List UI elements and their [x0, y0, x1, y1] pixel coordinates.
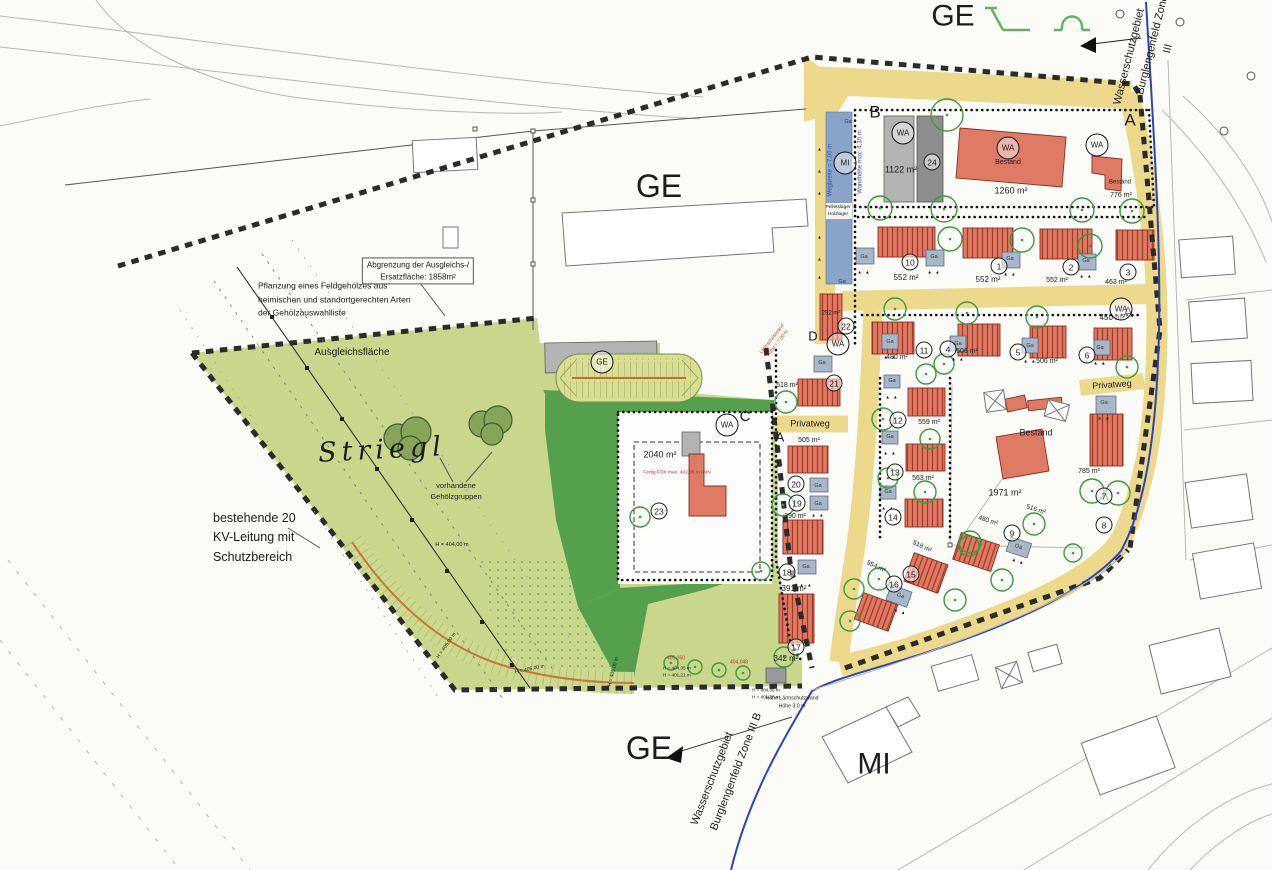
plot-area-label: 480 m²: [977, 513, 999, 528]
plot-number-21: 21: [826, 375, 843, 392]
wa-zone-circle: WA: [997, 137, 1020, 160]
plot-number-5: 5: [1010, 344, 1027, 361]
plot-number-20: 20: [788, 476, 805, 493]
garage-label: Ga: [818, 360, 825, 368]
plot-area-label: 391 m²: [782, 583, 807, 595]
field-name-striegl: Striegl: [317, 427, 447, 473]
parking-triangle-mark: ▲ ▲: [811, 513, 824, 520]
parking-triangle-mark: ▲: [817, 147, 822, 154]
plot-number-18: 18: [779, 564, 796, 581]
elevation-label: 404,048: [730, 659, 748, 666]
garage-label: Ga: [1006, 256, 1013, 264]
garage-label: Ga: [1096, 345, 1103, 353]
parking-triangle-mark: ▲ ▲: [883, 451, 896, 458]
note-laermschutzwand-sued: Höhe Lärmschutzwand Höhe 3,0 m: [765, 695, 818, 710]
garage-label: Ga: [888, 378, 895, 386]
elevation-label: H = 404,05 m H = 401,21 m: [663, 665, 691, 678]
plot-area-label: Bestand: [1019, 426, 1052, 439]
note-wandhoehe: Wandhöhe max. 4,30 m: [857, 130, 866, 193]
plot-number-7: 7: [1096, 488, 1113, 505]
plot-area-label: 390 m²: [784, 512, 806, 522]
plot-area-label: 1260 m²: [994, 184, 1027, 197]
plot-area-label: 518 m²: [776, 381, 798, 391]
plot-number-1: 1: [991, 258, 1008, 275]
plot-number-8: 8: [1096, 517, 1113, 534]
parking-triangle-mark: ▲: [817, 257, 822, 264]
elevation-label: H = 404,06 m H = 401,20 m: [752, 687, 780, 700]
plot-area-label: 1971 m²: [988, 486, 1021, 499]
plot-area-label: 480 m²: [886, 353, 908, 363]
plot-number-24: 24: [924, 154, 941, 171]
plot-area-label: 552 m²: [1046, 276, 1068, 286]
elevation-label: H = 404,00 m: [435, 542, 468, 550]
plot-area-label: 292 m²: [822, 310, 841, 319]
site-plan-canvas: GEGEGEMIStrieglBAAACDPrivatwegPrivatwegP…: [0, 0, 1272, 870]
elevation-label: H = 405,00 m: [514, 663, 545, 676]
note-abgrenzung-ersatzflaeche: Abgrenzung der Ausgleichs-/ Ersatzfläche…: [362, 257, 474, 284]
ge-zone-circle: GE: [591, 351, 614, 374]
plot-area-label: 506 m²: [1036, 357, 1058, 367]
plot-number-23: 23: [651, 503, 668, 520]
parking-triangle-mark: ▲: [817, 275, 822, 282]
garage-label: Ga: [838, 279, 845, 287]
garage-label: Ga: [814, 483, 821, 491]
parking-triangle-mark: ▲ ▲: [1097, 416, 1110, 423]
note-wegbreite: Wegbreite = 7,00 m: [827, 144, 836, 196]
parking-triangle-mark: ▲ ▲: [799, 583, 812, 590]
plot-number-13: 13: [887, 464, 904, 481]
plot-area-label: Bestand: [1109, 179, 1131, 188]
parking-triangle-mark: ▲ ▲: [1011, 557, 1026, 567]
block-label-a-top: A: [1124, 109, 1135, 134]
plot-area-label: 559 m²: [918, 418, 940, 428]
block-label-d: D: [808, 328, 817, 347]
plot-area-label: 552 m²: [976, 274, 1001, 286]
elevation-label: H = 405,00 m: [435, 632, 458, 661]
plot-number-6: 6: [1079, 347, 1096, 364]
garage-label: Ga: [930, 254, 937, 262]
plot-area-label: 2040 m²: [643, 448, 676, 461]
plot-area-label: 516 m²: [1025, 502, 1047, 517]
block-label-a-west: A: [776, 429, 785, 448]
garage-label: Ga: [1100, 400, 1107, 408]
plot-number-14: 14: [885, 509, 902, 526]
plot-number-10: 10: [902, 254, 919, 271]
plot-number-17: 17: [788, 639, 805, 656]
zone-label-ge-south: GE: [626, 725, 672, 771]
note-ausgleichsflaeche: Ausgleichsfläche: [314, 346, 389, 361]
parking-triangle-mark: ▲ ▲: [1003, 272, 1016, 279]
wa-zone-circle: WA: [716, 414, 739, 437]
plot-area-label: 776 m²: [1110, 191, 1132, 201]
wa-zone-circle: WA: [1086, 134, 1109, 157]
garage-label: Ga: [1082, 258, 1089, 266]
plot-number-16: 16: [886, 576, 903, 593]
garage-label: Ga: [814, 501, 821, 509]
garage-label: Ga: [1013, 543, 1022, 553]
plot-area-label: 518 m²: [911, 538, 933, 555]
plot-number-2: 2: [1063, 259, 1080, 276]
street-label-privatweg-east: Privatweg: [1092, 377, 1132, 393]
plot-number-19: 19: [789, 495, 806, 512]
note-gehoelzgruppen: vorhandene Gehölzgruppen: [430, 481, 481, 503]
garage-label: Ga: [860, 254, 867, 262]
plot-area-label: 552 m²: [894, 272, 919, 284]
parking-triangle-mark: ▲ ▲: [857, 270, 870, 277]
note-pelletslager: Pelletslager Holzlager: [825, 205, 850, 219]
note-wasserschutzgebiet-nord: Wasserschutzgebiet: [1110, 7, 1149, 107]
plot-number-15: 15: [903, 566, 920, 583]
garage-label: Ga: [844, 119, 851, 127]
plot-area-label: 1122 m²: [885, 163, 917, 176]
parking-triangle-mark: ▲ ▲: [885, 395, 898, 402]
plot-number-12: 12: [890, 412, 907, 429]
elevation-label: 405,350: [667, 655, 685, 662]
block-label-b: B: [869, 101, 880, 126]
zone-label-mi-south: MI: [857, 742, 890, 786]
plot-area-label: 554 m²: [865, 558, 887, 575]
note-feldgehoelz: Pflanzung eines Feldgehölzes aus heimisc…: [258, 280, 411, 321]
note-kv-leitung: bestehende 20 KV-Leitung mit Schutzberei…: [213, 509, 296, 567]
garage-label: Ga: [886, 339, 893, 347]
plot-area-label: 785 m²: [1078, 467, 1100, 477]
plot-number-3: 3: [1120, 264, 1137, 281]
garage-label: Ga: [802, 564, 809, 572]
parking-triangle-mark: ▲ ▲: [893, 607, 908, 618]
mi-zone-circle: MI: [834, 152, 857, 175]
block-label-c: C: [740, 406, 751, 428]
parking-triangle-mark: ▲ ▲: [883, 355, 896, 362]
note-laermschutzwand-west: Lärmschutzwand Höhe = 7,00 m: [759, 323, 792, 360]
garage-label: Ga: [1026, 343, 1033, 351]
garage-label: Ga: [895, 592, 905, 602]
note-zone-sued: Burglengenfeld Zone III B: [707, 711, 767, 833]
parking-triangle-mark: ▲ ▲: [927, 270, 940, 277]
wa-zone-circle: WA: [892, 122, 915, 145]
parking-triangle-mark: ▲: [817, 235, 822, 242]
wa-zone-circle: WA: [827, 333, 850, 356]
parking-triangle-mark: ▲ ▲: [1023, 359, 1036, 366]
parking-triangle-mark: ▲ ▲: [1093, 361, 1106, 368]
zone-label-ge-central: GE: [636, 163, 682, 209]
note-wasserschutzgebiet-sued: Wasserschutzgebiet: [688, 730, 738, 828]
garage-label: Ga: [886, 434, 893, 442]
label-layer: GEGEGEMIStrieglBAAACDPrivatwegPrivatwegP…: [0, 0, 1272, 870]
zone-label-ge-top: GE: [931, 0, 974, 38]
parking-triangle-mark: ▲ ▲: [1079, 274, 1092, 281]
parking-triangle-mark: ▲: [817, 169, 822, 176]
street-label-privatweg-west: Privatweg: [790, 417, 830, 430]
garage-label: Ga: [884, 489, 891, 497]
parking-triangle-mark: ▲: [817, 191, 822, 198]
note-fok: Fertig FOK max. 402,95 m üNN: [643, 471, 710, 478]
plot-number-4: 4: [940, 341, 957, 358]
wa-zone-circle: WA: [1110, 298, 1133, 321]
plot-area-label: 506 m²: [956, 347, 978, 357]
plot-number-9: 9: [1004, 525, 1021, 542]
elevation-label: H = 405,00 m: [607, 656, 622, 687]
plot-number-11: 11: [916, 342, 933, 359]
plot-area-label: 505 m²: [798, 436, 820, 446]
parking-triangle-mark: ▲ ▲: [951, 357, 964, 364]
note-zone-nord: Burglengenfeld Zone III: [1132, 0, 1190, 105]
plot-area-label: 563 m²: [912, 474, 934, 484]
